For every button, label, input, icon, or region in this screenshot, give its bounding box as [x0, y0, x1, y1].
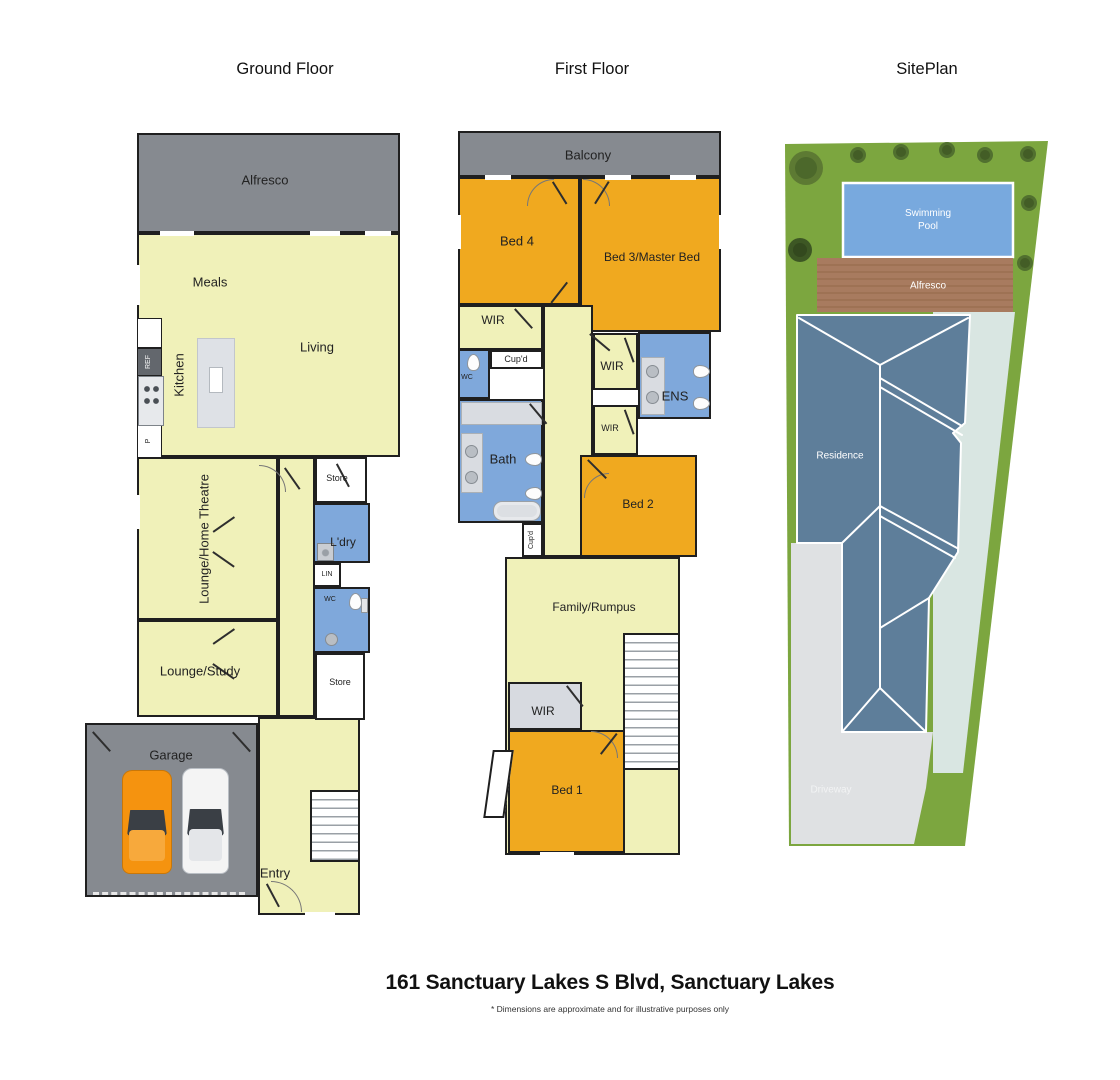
window	[135, 495, 140, 529]
site-alfresco-label: Alfresco	[910, 280, 946, 293]
window	[670, 175, 696, 180]
disclaimer: * Dimensions are approximate and for ill…	[491, 1004, 729, 1014]
car-white-icon	[182, 768, 229, 874]
store-upper-label: Store	[326, 473, 348, 483]
ground-floor-title: Ground Floor	[236, 60, 333, 79]
window	[310, 231, 340, 236]
wir-bed1-label: WIR	[531, 705, 554, 719]
basin-icon	[465, 471, 478, 484]
basin-icon	[646, 391, 659, 404]
living-label: Living	[300, 341, 334, 356]
car-roof-icon	[189, 829, 222, 860]
basin-icon	[646, 365, 659, 378]
window	[540, 852, 574, 857]
hall-corridor	[278, 457, 315, 717]
ensuite-label: ENS	[662, 390, 689, 405]
bed1-label: Bed 1	[551, 784, 582, 798]
store-lower-label: Store	[329, 677, 351, 687]
wir-bed2-label: WIR	[601, 423, 619, 433]
floorplan-page: Ground Floor First Floor SitePlan REF P	[0, 0, 1120, 1080]
window	[135, 265, 140, 305]
room-wc	[313, 587, 370, 653]
window	[456, 215, 461, 249]
swimming-pool-label: Swimming Pool	[896, 207, 960, 233]
linen-label: LIN	[322, 571, 333, 579]
car-roof-icon	[129, 830, 165, 861]
kitchen-sink-icon	[209, 367, 223, 393]
bed2-label: Bed 2	[622, 498, 653, 512]
first-floor-plan: Balcony Bed 4 Bed 3/Master Bed WIR Cup'd…	[455, 115, 725, 875]
site-plan-title: SitePlan	[896, 60, 957, 79]
kitchen-label: Kitchen	[173, 353, 188, 396]
window	[305, 912, 335, 917]
driveway-label: Driveway	[810, 784, 851, 797]
window	[365, 231, 391, 236]
fridge-label: REF	[145, 355, 153, 369]
bath-vanity	[461, 433, 483, 493]
first-floor-title: First Floor	[555, 60, 629, 79]
window	[719, 215, 724, 249]
garage-label: Garage	[149, 749, 192, 764]
toilet-icon	[467, 354, 480, 371]
entry-label: Entry	[260, 867, 290, 882]
wall-basin-icon	[525, 487, 542, 500]
bath-label: Bath	[490, 453, 517, 468]
room-living-meals-kitchen	[137, 233, 400, 457]
basin-icon	[325, 633, 338, 646]
basin-icon	[465, 445, 478, 458]
lounge-study-label: Lounge/Study	[160, 665, 240, 680]
wir-bed4-label: WIR	[481, 314, 504, 328]
cooktop-icon	[138, 376, 164, 426]
window	[485, 175, 511, 180]
kitchen-cupboard	[137, 318, 162, 348]
bed4-label: Bed 4	[500, 235, 534, 250]
laundry-label: L'dry	[330, 536, 356, 550]
ground-floor-plan: REF P	[85, 115, 420, 915]
property-address: 161 Sanctuary Lakes S Blvd, Sanctuary La…	[386, 971, 835, 995]
bed3-label: Bed 3/Master Bed	[604, 251, 700, 265]
wc-first-label: WC	[461, 374, 473, 382]
family-rumpus-label: Family/Rumpus	[552, 601, 635, 615]
cupboard-hall-label: Cup'd	[504, 354, 527, 364]
cupboard-bath-label: Cup'd	[528, 531, 536, 549]
site-plan-graphic	[783, 128, 1053, 850]
meals-label: Meals	[193, 276, 228, 291]
residence-label: Residence	[816, 450, 863, 463]
car-orange-icon	[122, 770, 172, 874]
alfresco-label: Alfresco	[242, 174, 289, 189]
wc-label: WC	[324, 596, 336, 604]
window	[160, 231, 194, 236]
garage-door-icon	[93, 892, 245, 895]
pantry-label: P	[145, 439, 153, 444]
wir-master-label: WIR	[600, 360, 623, 374]
wall-basin-icon	[525, 453, 542, 466]
window	[605, 175, 631, 180]
bathtub-icon	[493, 501, 541, 521]
first-floor-stairs	[623, 633, 680, 770]
balcony-label: Balcony	[565, 149, 611, 164]
lounge-home-theatre-label: Lounge/Home Theatre	[198, 474, 213, 604]
site-plan: Swimming Pool Alfresco Residence Drivewa…	[783, 128, 1053, 850]
toilet-tank-icon	[361, 598, 368, 613]
ground-stairs	[310, 790, 360, 862]
